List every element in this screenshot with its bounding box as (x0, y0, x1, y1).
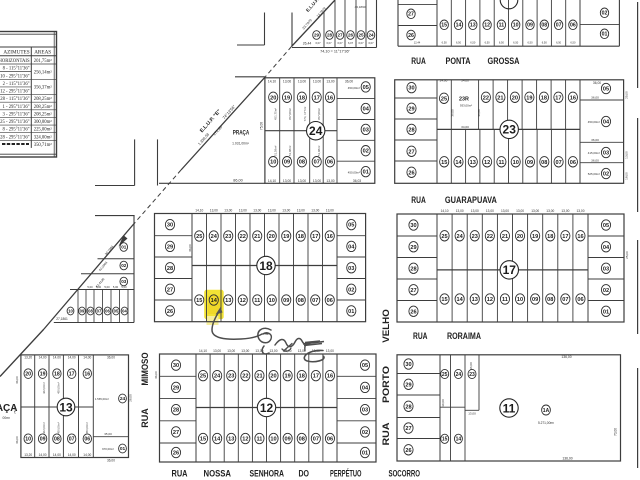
svg-text:05: 05 (363, 85, 369, 91)
svg-text:19: 19 (40, 372, 46, 378)
svg-text:6,50: 6,50 (470, 41, 476, 45)
svg-text:4 51,08m²: 4 51,08m² (317, 145, 321, 158)
svg-text:03: 03 (603, 266, 609, 272)
svg-text:43,1890: 43,1890 (355, 5, 366, 9)
svg-text:PERPÉTUO: PERPÉTUO (330, 469, 362, 479)
svg-text:13,00: 13,00 (501, 209, 509, 213)
svg-text:24: 24 (211, 234, 218, 240)
svg-text:14,00: 14,00 (83, 453, 91, 457)
svg-text:36,00: 36,00 (591, 158, 599, 162)
svg-text:27: 27 (405, 426, 411, 432)
svg-text:24: 24 (120, 396, 126, 402)
svg-text:23: 23 (472, 234, 478, 240)
svg-text:20: 20 (25, 372, 31, 378)
svg-text:15: 15 (442, 437, 448, 443)
svg-text:17: 17 (314, 95, 320, 101)
svg-text:70,00: 70,00 (614, 428, 618, 436)
svg-text:14: 14 (457, 297, 464, 303)
svg-text:13,20: 13,20 (24, 355, 32, 359)
svg-text:6,50: 6,50 (542, 41, 548, 45)
svg-text:11: 11 (498, 160, 504, 166)
svg-text:13,00: 13,00 (326, 349, 334, 353)
svg-text:21: 21 (256, 374, 262, 380)
svg-text:10: 10 (68, 309, 73, 314)
svg-text:13,20: 13,20 (24, 453, 32, 457)
svg-text:6,50: 6,50 (556, 41, 562, 45)
svg-text:13,00: 13,00 (313, 179, 321, 183)
svg-text:16: 16 (84, 372, 90, 378)
svg-text:28 - 115°11'36": 28 - 115°11'36" (0, 97, 29, 102)
svg-text:02: 02 (603, 172, 609, 178)
svg-text:26: 26 (405, 448, 411, 454)
svg-text:450,00m²: 450,00m² (348, 86, 360, 90)
svg-text:06: 06 (84, 437, 90, 443)
svg-text:AZIMUTES: AZIMUTES (3, 50, 29, 56)
svg-text:13,00: 13,00 (546, 209, 554, 213)
svg-text:19: 19 (283, 234, 289, 240)
svg-text:RUA: RUA (413, 331, 428, 341)
svg-text:18: 18 (547, 234, 553, 240)
svg-text:11: 11 (499, 23, 505, 29)
svg-text:36,03: 36,03 (353, 179, 361, 183)
svg-text:14: 14 (456, 437, 462, 443)
svg-text:13,00: 13,00 (531, 209, 539, 213)
svg-text:4 51,58m²: 4 51,58m² (274, 145, 278, 158)
svg-text:SOCORRO: SOCORRO (389, 469, 421, 479)
svg-text:03: 03 (362, 408, 368, 414)
svg-text:06: 06 (327, 298, 333, 304)
svg-text:6,07: 6,07 (337, 41, 343, 45)
svg-text:10: 10 (517, 297, 523, 303)
svg-text:14,10: 14,10 (268, 179, 276, 183)
svg-text:13,00: 13,00 (213, 349, 221, 353)
svg-text:RUA: RUA (172, 469, 188, 479)
svg-text:25: 25 (442, 372, 448, 378)
svg-text:13,00: 13,00 (625, 151, 629, 159)
svg-text:09: 09 (40, 437, 46, 443)
svg-text:6,07: 6,07 (326, 41, 332, 45)
svg-text:28: 28 (173, 408, 179, 414)
svg-text:5,00: 5,00 (96, 285, 102, 289)
svg-text:12: 12 (242, 437, 248, 443)
svg-text:26: 26 (408, 33, 414, 39)
svg-text:07: 07 (555, 160, 561, 166)
svg-text:GROSSA: GROSSA (488, 56, 520, 66)
svg-text:05: 05 (348, 223, 354, 229)
svg-text:13,00: 13,00 (561, 209, 569, 213)
svg-text:36,00: 36,00 (107, 355, 115, 359)
svg-text:13,00: 13,00 (577, 209, 585, 213)
svg-text:457,08m²: 457,08m² (288, 108, 292, 120)
svg-text:26: 26 (173, 451, 179, 457)
svg-text:09: 09 (532, 297, 538, 303)
svg-text:75,00: 75,00 (259, 122, 263, 130)
svg-text:6,07: 6,07 (348, 41, 354, 45)
svg-text:18: 18 (298, 234, 304, 240)
svg-text:36,00: 36,00 (345, 79, 353, 83)
svg-text:13,00: 13,00 (210, 208, 218, 212)
svg-text:208,25m²: 208,25m² (34, 104, 53, 110)
svg-text:6,50: 6,50 (513, 41, 519, 45)
svg-text:29: 29 (314, 33, 320, 38)
svg-text:12: 12 (260, 401, 274, 415)
svg-text:30: 30 (173, 363, 179, 369)
svg-text:08: 08 (547, 297, 553, 303)
svg-text:24: 24 (368, 33, 374, 38)
svg-text:12,44: 12,44 (414, 41, 421, 45)
svg-text:324,00m²: 324,00m² (34, 134, 53, 140)
svg-text:24: 24 (309, 124, 323, 138)
svg-text:07: 07 (313, 437, 319, 443)
svg-text:86,00: 86,00 (233, 179, 243, 183)
svg-text:07: 07 (69, 437, 75, 443)
svg-text:13,00: 13,00 (471, 209, 479, 213)
svg-text:462,00m²: 462,00m² (42, 422, 46, 434)
svg-text:25: 25 (441, 96, 447, 102)
svg-text:13,00: 13,00 (516, 209, 524, 213)
svg-text:01: 01 (120, 446, 126, 452)
svg-text:14,10: 14,10 (268, 79, 276, 83)
svg-text:201,75m²: 201,75m² (34, 58, 53, 64)
svg-text:25: 25 (441, 234, 447, 240)
svg-text:20: 20 (517, 234, 523, 240)
svg-text:06: 06 (327, 160, 333, 166)
svg-text:13,00: 13,00 (311, 208, 319, 212)
svg-text:09: 09 (527, 23, 533, 29)
svg-text:12: 12 (487, 297, 493, 303)
svg-text:02: 02 (363, 149, 369, 155)
svg-text:DO: DO (299, 469, 310, 479)
svg-text:08: 08 (54, 437, 60, 443)
svg-text:75,00: 75,00 (13, 406, 17, 414)
svg-text:36,00: 36,00 (188, 244, 192, 252)
svg-text:457,08m²: 457,08m² (317, 108, 321, 120)
svg-text:22: 22 (240, 234, 246, 240)
svg-text:14: 14 (455, 160, 462, 166)
svg-text:2 - 115°11'36": 2 - 115°11'36" (3, 82, 30, 87)
svg-text:13,00: 13,00 (486, 209, 494, 213)
svg-text:14: 14 (214, 437, 221, 443)
svg-text:15: 15 (196, 298, 202, 304)
svg-text:13,00: 13,00 (270, 349, 278, 353)
svg-text:774, 17?m²: 774, 17?m² (303, 107, 307, 122)
svg-text:07: 07 (556, 23, 562, 29)
svg-text:06: 06 (105, 309, 110, 314)
svg-text:09: 09 (527, 160, 533, 166)
svg-text:01: 01 (603, 309, 609, 315)
svg-text:27: 27 (408, 12, 414, 18)
svg-text:10: 10 (513, 160, 519, 166)
svg-text:02: 02 (121, 263, 127, 268)
svg-text:15: 15 (441, 160, 447, 166)
svg-text:GUARAPUAVA: GUARAPUAVA (445, 195, 497, 205)
svg-text:10: 10 (269, 298, 275, 304)
svg-text:1.031,00m²: 1.031,00m² (232, 142, 250, 146)
svg-text:06: 06 (570, 160, 576, 166)
svg-text:27: 27 (173, 430, 179, 436)
svg-text:15: 15 (200, 437, 206, 443)
svg-text:10 - 295°11'36": 10 - 295°11'36" (0, 74, 30, 79)
svg-text:HORIZONTAIS: HORIZONTAIS (0, 59, 30, 64)
svg-text:28,00: 28,00 (129, 394, 133, 402)
svg-text:26: 26 (410, 309, 416, 315)
svg-text:13,00: 13,00 (326, 79, 334, 83)
svg-text:13,00: 13,00 (313, 79, 321, 83)
svg-text:19: 19 (526, 95, 532, 101)
svg-text:14,00: 14,00 (83, 355, 91, 359)
svg-text:13,00: 13,00 (326, 208, 334, 212)
svg-text:23: 23 (503, 123, 517, 137)
svg-text:6,50: 6,50 (570, 41, 576, 45)
svg-text:12: 12 (484, 160, 490, 166)
svg-text:36,00: 36,00 (591, 138, 599, 142)
svg-text:3 - 295°11'36": 3 - 295°11'36" (2, 112, 29, 117)
svg-text:06: 06 (570, 23, 576, 29)
svg-text:16: 16 (570, 95, 576, 101)
svg-text:36,00: 36,00 (593, 81, 601, 85)
svg-text:415,00m²: 415,00m² (588, 151, 600, 155)
svg-text:17: 17 (69, 372, 75, 378)
svg-text:14,00: 14,00 (68, 453, 76, 457)
svg-text:01: 01 (362, 451, 368, 457)
svg-text:36,00: 36,00 (15, 436, 19, 444)
svg-text:13,06: 13,06 (283, 79, 291, 83)
svg-text:5.271,00m²: 5.271,00m² (538, 421, 554, 425)
svg-text:08: 08 (541, 160, 547, 166)
svg-text:03: 03 (603, 151, 609, 157)
svg-text:14,00: 14,00 (68, 355, 76, 359)
svg-text:36,00: 36,00 (451, 109, 455, 117)
svg-text:AREAS: AREAS (34, 50, 51, 56)
svg-text:34,00: 34,00 (461, 78, 469, 82)
svg-text:18,00: 18,00 (625, 172, 629, 180)
svg-text:6,07: 6,07 (368, 41, 374, 45)
svg-text:02: 02 (603, 288, 609, 294)
svg-text:18: 18 (299, 374, 305, 380)
svg-text:225,00m²: 225,00m² (34, 127, 53, 133)
svg-text:25: 25 (196, 234, 202, 240)
svg-text:10: 10 (513, 23, 519, 29)
svg-text:16: 16 (327, 374, 333, 380)
svg-text:23: 23 (225, 234, 231, 240)
svg-text:VELHO: VELHO (381, 309, 392, 343)
svg-text:14,10: 14,10 (441, 209, 449, 213)
svg-text:05: 05 (603, 87, 609, 93)
svg-text:08: 08 (88, 309, 93, 314)
svg-text:22: 22 (483, 95, 489, 101)
svg-text:23R: 23R (459, 96, 469, 102)
svg-text:208,25m²: 208,25m² (34, 96, 53, 102)
svg-text:RUA: RUA (381, 422, 392, 445)
svg-text:5,00: 5,00 (87, 285, 93, 289)
svg-text:13,00: 13,00 (227, 349, 235, 353)
svg-text:25: 25 (358, 33, 364, 38)
svg-text:02: 02 (362, 430, 368, 436)
svg-text:256,14m²: 256,14m² (34, 69, 53, 75)
svg-text:34,00: 34,00 (461, 125, 469, 129)
svg-text:28: 28 (410, 266, 416, 272)
svg-text:30: 30 (408, 86, 414, 92)
svg-text:24,00: 24,00 (440, 78, 448, 82)
svg-text:36,00: 36,00 (15, 376, 19, 384)
svg-text:27,1861: 27,1861 (56, 317, 68, 321)
svg-text:22: 22 (242, 374, 248, 380)
svg-text:450,00m²: 450,00m² (588, 120, 600, 124)
svg-text:08: 08 (299, 437, 305, 443)
svg-text:13: 13 (225, 298, 231, 304)
svg-text:12: 12 (240, 298, 246, 304)
svg-text:6,50: 6,50 (485, 41, 491, 45)
svg-text:05: 05 (603, 223, 609, 229)
svg-text:07: 07 (314, 160, 320, 166)
svg-text:08: 08 (298, 298, 304, 304)
svg-text:350,71m²: 350,71m² (34, 142, 53, 148)
svg-text:29: 29 (173, 385, 179, 391)
svg-text:17: 17 (312, 234, 318, 240)
svg-text:8 - 295°11'36": 8 - 295°11'36" (2, 128, 29, 133)
svg-text:450,00m²: 450,00m² (56, 382, 60, 394)
svg-text:02: 02 (602, 11, 608, 17)
svg-text:13,00: 13,00 (326, 179, 334, 183)
svg-text:30,00: 30,00 (441, 399, 445, 407)
svg-text:NOSSA: NOSSA (204, 469, 232, 479)
svg-text:6,50: 6,50 (499, 41, 505, 45)
svg-text:10: 10 (270, 437, 276, 443)
svg-text:25 - 295°11'36": 25 - 295°11'36" (0, 120, 30, 125)
svg-text:28: 28 (327, 33, 333, 38)
svg-text:01: 01 (348, 309, 354, 315)
svg-text:RORAIMA: RORAIMA (447, 331, 481, 341)
svg-text:23: 23 (469, 372, 475, 378)
svg-text:PRAÇA: PRAÇA (233, 130, 250, 137)
svg-text:21: 21 (254, 234, 260, 240)
svg-text:14,00: 14,00 (39, 453, 47, 457)
svg-text:28: 28 (405, 404, 411, 410)
svg-text:01: 01 (363, 170, 369, 176)
svg-text:28 - 295°11'36": 28 - 295°11'36" (0, 135, 30, 140)
svg-text:1 - 295°11'36": 1 - 295°11'36" (2, 105, 29, 110)
svg-text:09: 09 (284, 160, 290, 166)
svg-text:13,00: 13,00 (456, 209, 464, 213)
svg-text:4 51,08m²: 4 51,08m² (288, 145, 292, 158)
svg-text:26: 26 (348, 33, 354, 38)
svg-text:13,00: 13,00 (253, 208, 261, 212)
svg-text:14: 14 (211, 298, 218, 304)
svg-text:462,00m²: 462,00m² (42, 382, 46, 394)
svg-text:21: 21 (497, 95, 503, 101)
svg-text:04: 04 (348, 244, 355, 250)
svg-text:1A: 1A (543, 408, 550, 414)
svg-text:8 - 115°11'36": 8 - 115°11'36" (3, 67, 30, 72)
svg-text:09: 09 (285, 437, 291, 443)
svg-text:16: 16 (327, 95, 333, 101)
svg-text:11: 11 (256, 437, 262, 443)
svg-text:14,10: 14,10 (195, 208, 203, 212)
svg-text:300,00m²: 300,00m² (34, 119, 53, 125)
svg-text:13,00: 13,00 (468, 412, 476, 416)
svg-text:MIMOSO: MIMOSO (140, 353, 151, 386)
svg-text:22: 22 (487, 234, 493, 240)
svg-text:30: 30 (410, 223, 416, 229)
svg-text:07: 07 (562, 297, 568, 303)
svg-text:74,10 = 11°17'36": 74,10 = 11°17'36" (320, 50, 350, 54)
svg-text:21: 21 (502, 234, 508, 240)
svg-text:24: 24 (214, 374, 221, 380)
svg-text:13,00: 13,00 (224, 208, 232, 212)
svg-text:14,00: 14,00 (53, 453, 61, 457)
svg-text:20: 20 (269, 234, 275, 240)
svg-text:450,00m²: 450,00m² (348, 170, 360, 174)
svg-text:27: 27 (410, 288, 416, 294)
svg-text:17: 17 (555, 95, 561, 101)
svg-text:28: 28 (167, 266, 173, 272)
svg-text:136,00: 136,00 (562, 456, 572, 460)
svg-text:13,00: 13,00 (241, 349, 249, 353)
svg-text:26,44: 26,44 (303, 42, 312, 46)
svg-text:12: 12 (484, 23, 490, 29)
svg-text:20: 20 (270, 374, 276, 380)
svg-text:09: 09 (80, 309, 85, 314)
svg-text:13: 13 (470, 160, 476, 166)
svg-text:13,00: 13,00 (298, 79, 306, 83)
svg-text:11: 11 (502, 297, 508, 303)
svg-text:26: 26 (408, 170, 414, 176)
svg-text:6,50: 6,50 (456, 41, 462, 45)
svg-text:36,00: 36,00 (107, 459, 115, 463)
svg-text:23: 23 (228, 374, 234, 380)
svg-text:15: 15 (441, 23, 447, 29)
svg-text:20: 20 (512, 95, 518, 101)
svg-text:29: 29 (410, 245, 416, 251)
svg-text:10: 10 (270, 160, 276, 166)
svg-text:04: 04 (362, 385, 369, 391)
svg-text:03: 03 (363, 127, 369, 133)
svg-text:17: 17 (562, 234, 568, 240)
svg-text:27: 27 (167, 287, 173, 293)
svg-text:07: 07 (97, 309, 102, 314)
svg-text:36,00: 36,00 (154, 371, 158, 379)
svg-text:30: 30 (405, 362, 411, 368)
svg-text:450,00m²: 450,00m² (56, 422, 60, 434)
svg-text:36,00: 36,00 (469, 362, 473, 370)
svg-text:451,75m²: 451,75m² (274, 108, 278, 120)
svg-text:01: 01 (602, 32, 608, 38)
svg-text:970,00m²: 970,00m² (102, 447, 114, 451)
svg-text:35,00: 35,00 (104, 432, 112, 436)
svg-text:13,00: 13,00 (268, 208, 276, 212)
svg-text:5,00: 5,00 (104, 285, 110, 289)
svg-text:208,25m²: 208,25m² (34, 111, 53, 117)
svg-text:06: 06 (327, 437, 333, 443)
svg-text:11: 11 (503, 401, 516, 415)
svg-text:17: 17 (313, 374, 319, 380)
svg-text:27: 27 (408, 149, 414, 155)
svg-text:13: 13 (59, 400, 73, 414)
svg-text:20: 20 (270, 95, 276, 101)
svg-text:12 - 295°11'36": 12 - 295°11'36" (0, 90, 30, 95)
svg-text:30: 30 (167, 223, 173, 229)
svg-text:24: 24 (457, 234, 464, 240)
svg-text:6,07: 6,07 (315, 41, 321, 45)
svg-text:13: 13 (470, 23, 476, 29)
svg-text:16: 16 (577, 234, 583, 240)
svg-text:13: 13 (472, 297, 478, 303)
svg-text:14: 14 (456, 23, 462, 29)
svg-text:14,00: 14,00 (53, 355, 61, 359)
svg-text:13: 13 (228, 437, 234, 443)
svg-text:08: 08 (541, 23, 547, 29)
svg-text:36,00: 36,00 (477, 109, 481, 117)
